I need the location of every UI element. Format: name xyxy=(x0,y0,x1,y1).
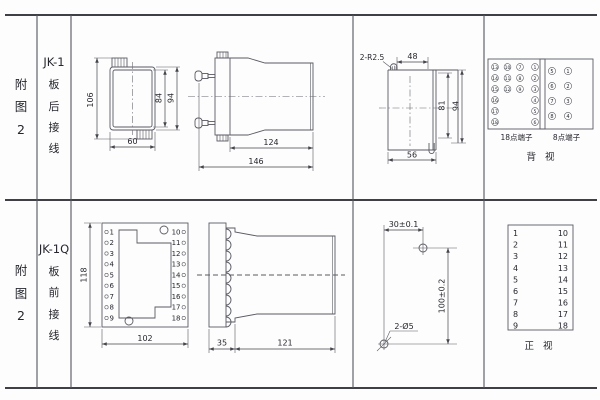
svg-text:16: 16 xyxy=(558,299,568,308)
svg-text:3: 3 xyxy=(566,99,569,105)
svg-text:9: 9 xyxy=(513,321,518,330)
jk1-panel-cutout-drawing: 2-R2.5 48 81 94 56 xyxy=(355,40,480,170)
svg-text:18: 18 xyxy=(558,321,568,330)
svg-text:3: 3 xyxy=(110,250,114,258)
svg-text:16: 16 xyxy=(172,293,181,301)
svg-text:3: 3 xyxy=(534,87,537,93)
svg-text:5: 5 xyxy=(550,69,553,75)
terminal-table-right-column: 10 11 12 13 14 15 16 17 18 xyxy=(558,229,568,330)
svg-text:4: 4 xyxy=(534,98,537,104)
label-8pt: 8点端子 xyxy=(553,132,581,142)
row1-fig-label: 附 图 2 xyxy=(15,74,28,142)
row1-wiring-label: 板 后 接 线 xyxy=(49,74,60,160)
svg-text:15: 15 xyxy=(172,282,181,290)
dim-94: 94 xyxy=(452,101,461,111)
svg-text:10: 10 xyxy=(505,65,511,71)
svg-text:10: 10 xyxy=(172,228,181,236)
svg-text:7: 7 xyxy=(110,293,114,301)
svg-text:7: 7 xyxy=(513,299,518,308)
row2-wiring-label: 板 前 接 线 xyxy=(49,261,60,347)
svg-text:14: 14 xyxy=(172,271,181,279)
dim-106: 106 xyxy=(86,92,95,107)
row1-model-cell: JK-1 板 后 接 线 xyxy=(37,15,71,200)
terminal-screw-top xyxy=(195,71,215,81)
terminal-table-left-column: 1 2 3 4 5 6 7 8 9 xyxy=(513,229,518,330)
svg-text:12: 12 xyxy=(505,87,511,93)
svg-text:17: 17 xyxy=(558,310,568,319)
svg-text:18: 18 xyxy=(492,120,498,126)
dim-118: 118 xyxy=(80,267,89,282)
dim-81: 81 xyxy=(438,100,447,110)
svg-text:9: 9 xyxy=(519,87,522,93)
svg-text:4: 4 xyxy=(110,261,115,269)
flange-top-cap xyxy=(217,52,228,58)
dim-124: 124 xyxy=(263,138,278,147)
terminal-screw-bottom xyxy=(195,118,215,128)
dim-121: 121 xyxy=(277,339,292,348)
svg-text:15: 15 xyxy=(558,287,568,296)
row2-model-cell: JK-1Q 板 前 接 线 xyxy=(37,200,71,388)
svg-text:2: 2 xyxy=(566,84,569,90)
svg-text:12: 12 xyxy=(558,252,568,261)
svg-text:5: 5 xyxy=(110,271,114,279)
svg-text:7: 7 xyxy=(550,99,553,105)
svg-text:8: 8 xyxy=(550,114,553,120)
svg-text:6: 6 xyxy=(513,287,518,296)
dim-48: 48 xyxy=(407,52,417,61)
row2-model-label: JK-1Q xyxy=(39,242,69,256)
svg-text:11: 11 xyxy=(505,76,511,82)
jk1q-side-view-drawing: 35 121 xyxy=(195,215,350,360)
svg-text:6: 6 xyxy=(110,282,115,290)
svg-text:3: 3 xyxy=(513,252,518,261)
rear-view-label: 背 视 xyxy=(526,151,557,163)
svg-text:7: 7 xyxy=(519,65,522,71)
front-view-label: 正 视 xyxy=(524,340,555,352)
svg-text:4: 4 xyxy=(566,114,569,120)
row1-model-label: JK-1 xyxy=(43,55,64,69)
svg-text:5: 5 xyxy=(534,109,537,115)
corner-radius-note: 2-R2.5 xyxy=(360,53,385,62)
row1-fig-label-cell: 附 图 2 xyxy=(5,15,37,200)
label-18pt: 18点端子 xyxy=(500,132,533,142)
svg-text:9: 9 xyxy=(110,314,114,322)
svg-text:13: 13 xyxy=(172,261,181,269)
svg-text:5: 5 xyxy=(513,275,518,284)
dim-60: 60 xyxy=(127,137,137,146)
dim-146: 146 xyxy=(248,157,263,166)
svg-text:11: 11 xyxy=(172,239,181,247)
cutout-right-edge xyxy=(433,70,436,150)
svg-text:2: 2 xyxy=(110,239,114,247)
svg-text:1: 1 xyxy=(513,229,518,238)
dim-hole-span: 30±0.1 xyxy=(389,220,419,229)
dim-hole-height: 100±0.2 xyxy=(438,279,447,314)
svg-text:14: 14 xyxy=(492,76,498,82)
svg-text:16: 16 xyxy=(492,98,498,104)
figure-page: 附 图 2 JK-1 板 后 接 线 106 84 94 60 xyxy=(0,0,600,400)
svg-text:17: 17 xyxy=(492,109,498,115)
top-screw-slot xyxy=(391,64,398,70)
svg-text:6: 6 xyxy=(534,120,537,126)
jk1-front-outline-drawing: 106 84 94 60 xyxy=(80,40,185,175)
dim-102: 102 xyxy=(137,334,152,343)
row2-fig-label-cell: 附 图 2 xyxy=(5,200,37,388)
top-terminal-block xyxy=(112,58,127,67)
row2-fig-label: 附 图 2 xyxy=(15,260,28,328)
svg-text:12: 12 xyxy=(172,250,181,258)
svg-text:17: 17 xyxy=(172,304,181,312)
drilling-plan-drawing: 30±0.1 100±0.2 2-Ø5 xyxy=(360,215,480,360)
svg-text:6: 6 xyxy=(550,84,553,90)
relay-body-outline xyxy=(119,230,171,318)
dim-84: 84 xyxy=(155,93,164,103)
svg-text:2: 2 xyxy=(513,241,518,250)
mounting-hole-top xyxy=(160,226,168,234)
svg-text:8: 8 xyxy=(110,304,114,312)
cutout-left-bottom xyxy=(388,70,436,150)
right-terminals: 10 11 12 13 14 15 16 17 18 xyxy=(172,228,186,322)
svg-text:2: 2 xyxy=(534,76,537,82)
svg-text:13: 13 xyxy=(558,264,568,273)
svg-text:13: 13 xyxy=(492,65,498,71)
terminals-8pt: 5 6 7 8 1 2 3 4 xyxy=(548,67,571,120)
svg-text:1: 1 xyxy=(566,69,569,75)
svg-text:11: 11 xyxy=(558,241,568,250)
svg-text:8: 8 xyxy=(519,76,522,82)
flange-bottom-cap xyxy=(217,135,228,141)
svg-text:10: 10 xyxy=(558,229,568,238)
terminals-18pt: 13 14 15 16 17 18 10 11 12 7 8 9 1 2 3 4… xyxy=(492,64,539,126)
hole-note: 2-Ø5 xyxy=(394,321,413,331)
rear-view-terminal-diagrams: 13 14 15 16 17 18 10 11 12 7 8 9 1 2 3 4… xyxy=(485,50,600,170)
front-view-terminal-table: 1 2 3 4 5 6 7 8 9 10 11 12 13 14 15 16 1… xyxy=(485,215,600,360)
jk1q-front-view-drawing: 1 2 3 4 5 6 7 8 9 10 11 12 13 14 15 16 1… xyxy=(75,215,205,360)
svg-text:1: 1 xyxy=(110,228,114,236)
svg-text:4: 4 xyxy=(513,264,518,273)
svg-text:18: 18 xyxy=(172,314,181,322)
dim-56: 56 xyxy=(407,151,417,160)
bottom-terminal-block xyxy=(137,130,152,139)
dim-94: 94 xyxy=(167,93,176,103)
svg-text:1: 1 xyxy=(534,65,537,71)
left-terminals: 1 2 3 4 5 6 7 8 9 xyxy=(105,228,115,322)
svg-text:14: 14 xyxy=(558,275,568,284)
terminal-bumps xyxy=(226,229,231,327)
dim-35: 35 xyxy=(217,339,227,348)
svg-text:15: 15 xyxy=(492,87,498,93)
jk1-side-view-drawing: 124 146 xyxy=(185,30,350,175)
svg-text:8: 8 xyxy=(513,310,518,319)
